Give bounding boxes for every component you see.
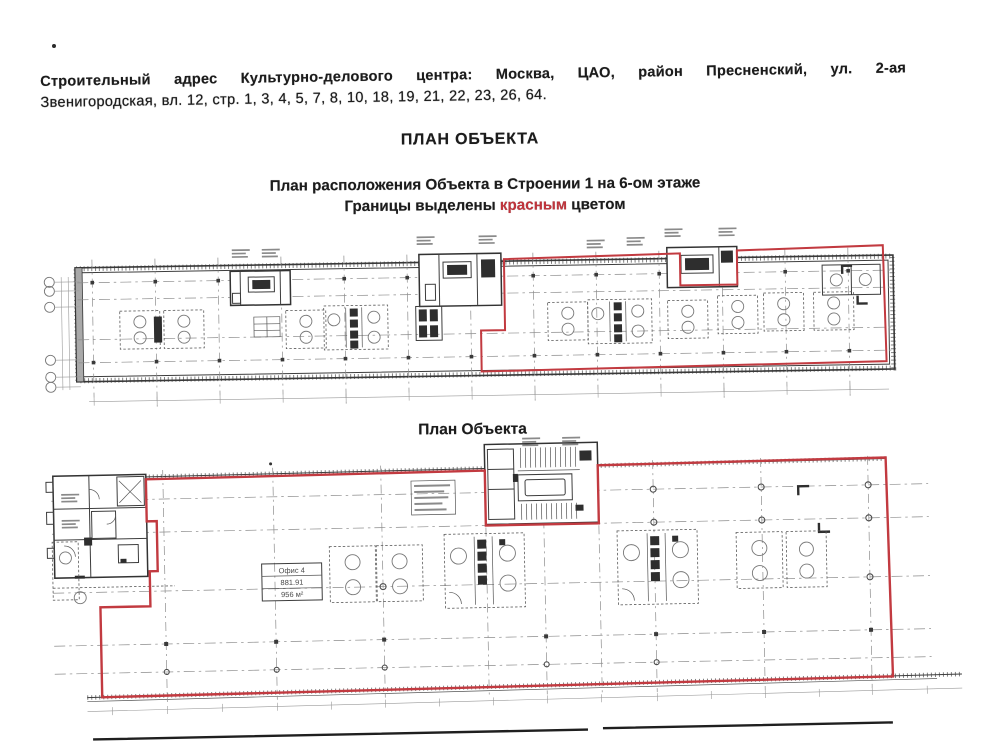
office-stamp-area2: 956 м² [281,590,304,599]
title-plan-obekta: ПЛАН ОБЪЕКТА [0,127,940,152]
building-address: Строительный адрес Культурно-делового це… [40,58,907,114]
boundaries-suffix: цветом [567,196,626,213]
scan-speck-2 [269,462,272,465]
plan1-corner-bracket-bottom [858,295,868,303]
plan2-left-room-block [46,474,148,579]
plan1-wc-block [416,306,443,340]
subtitle-boundaries: Границы выделены красным цветом [0,193,970,218]
address-line-1-rest: Москва, ЦАО, район Пресненский, ул. 2-ая [496,60,907,82]
object-plan-drawing: Офис 4 881.91 956 м² [22,428,973,747]
boundaries-red-word: красным [500,196,567,214]
plan2-left-dashed-line [53,586,175,588]
plan1-dimension-line [89,385,889,406]
plan2-room-stamp [411,480,456,515]
plan2-axis-marker [74,592,86,604]
plan2-stair-core [484,442,599,524]
scanned-document-page: { "address": { "lead": "Строительный адр… [0,0,1000,750]
office-area-stamp: Офис 4 881.91 956 м² [262,563,323,601]
subtitle-location: План расположения Объекта в Строении 1 н… [0,172,970,197]
floor-location-plan-drawing [26,217,909,429]
plan1-core-b [419,253,502,306]
plan1-right-rooms [822,264,880,295]
scan-speck [52,44,56,48]
boundaries-prefix: Границы выделены [344,197,500,215]
page-cutoff-line [93,722,893,739]
plan2-corner-bracket-top [798,486,809,495]
office-stamp-area1: 881.91 [280,578,303,587]
plan1-core-a [230,271,291,306]
office-stamp-name: Офис 4 [279,566,305,576]
plan2-furniture-clusters [52,527,827,617]
